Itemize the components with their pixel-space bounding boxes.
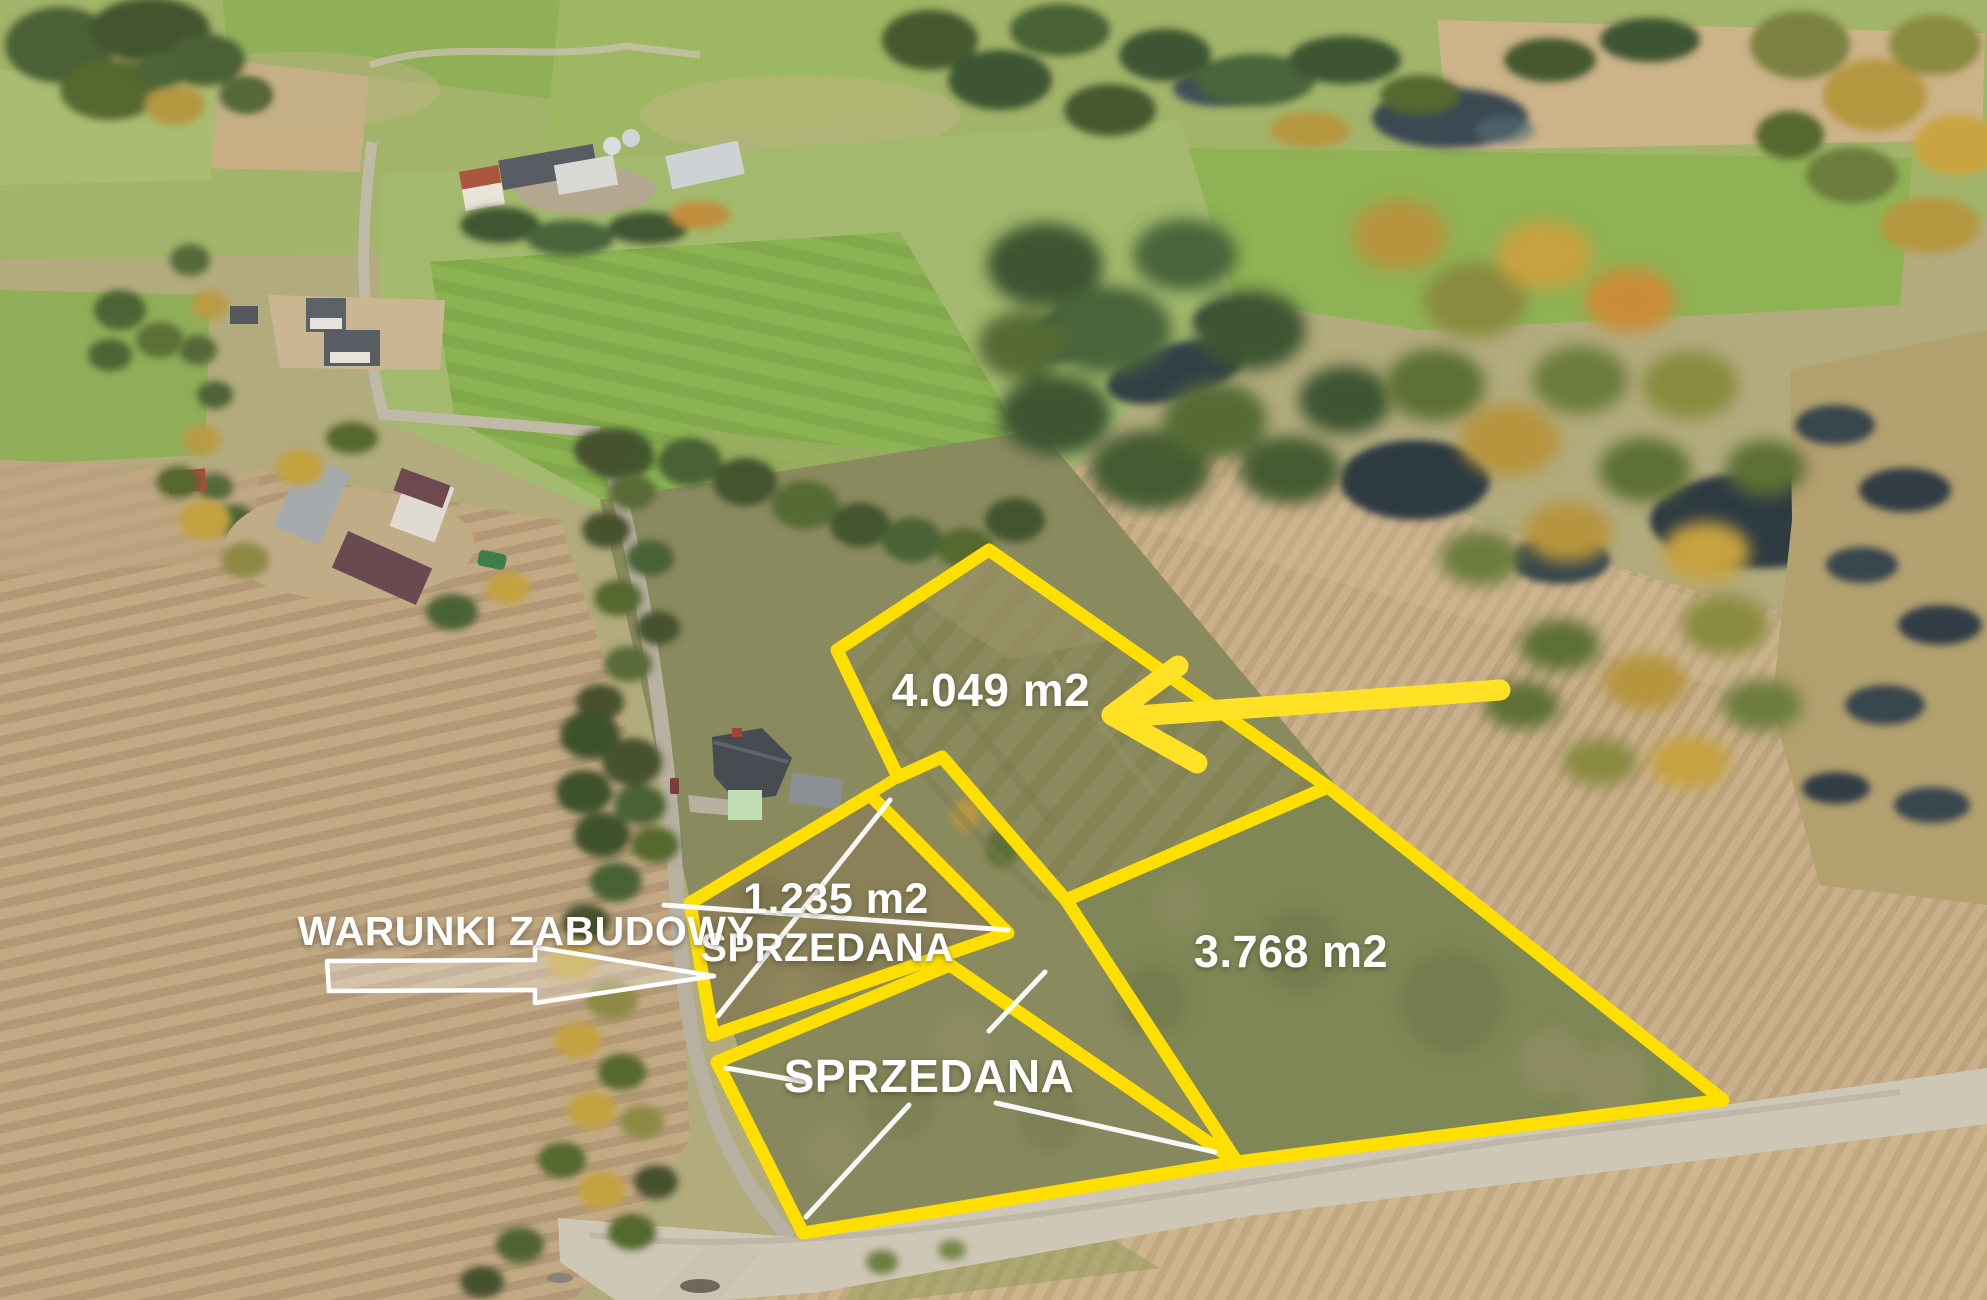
warunki-zabudowy-label: WARUNKI ZABUDOWY: [298, 908, 755, 954]
plot-area-label-3768: 3.768 m2: [1194, 926, 1388, 977]
plot-area-label-4049: 4.049 m2: [892, 664, 1090, 716]
aerial-photo-canvas: 4.049 m2 1.235 m2 SPRZEDANA WARUNKI ZABU…: [0, 0, 1987, 1300]
plot-area-label-1235: 1.235 m2: [743, 875, 929, 923]
sold-label-bottom: SPRZEDANA: [784, 1050, 1075, 1102]
marsh: [1772, 330, 1987, 905]
aerial-photo: 4.049 m2 1.235 m2 SPRZEDANA WARUNKI ZABU…: [0, 0, 1987, 1300]
